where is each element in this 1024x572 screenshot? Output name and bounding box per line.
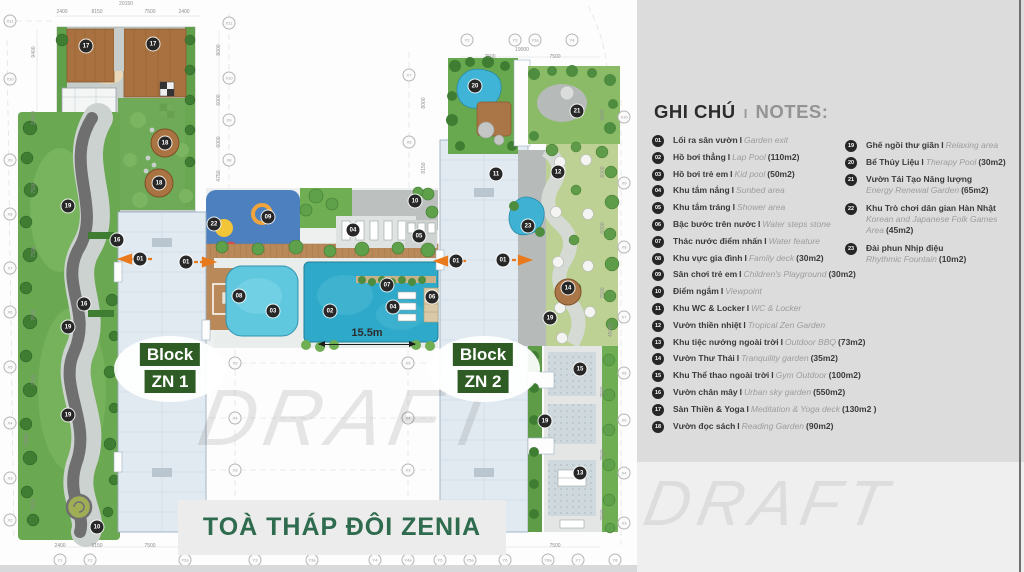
plan-marker: 07: [381, 279, 394, 292]
screenshot-root: 17 17 18 18 19 16 01 01 16 19 19 10: [0, 0, 1024, 572]
grid-bubble: X4: [618, 467, 631, 480]
grid-bubble: X3: [4, 472, 17, 485]
legend-item: 21 Vườn Tái Tạo Năng lượngEnergy Renewal…: [845, 174, 1017, 196]
legend-item-number: 15: [652, 370, 664, 382]
legend-item: 18 Vườn đọc sáchIReading Garden(90m2): [652, 421, 952, 433]
grid-bubble: X5: [4, 361, 17, 374]
legend-item-label-en: Kid pool: [735, 169, 766, 179]
legend-item-area: (30m2): [978, 157, 1005, 167]
plan-marker: 19: [62, 409, 75, 422]
legend-item-number: 04: [652, 185, 664, 197]
legend-item-label-vi: Khu tắm nắng: [673, 185, 730, 195]
dimension-text: 7500: [600, 449, 606, 460]
grid-bubble: X7: [4, 262, 17, 275]
dimension-text: 7500: [600, 509, 606, 520]
dimension-text: 10600: [31, 111, 37, 125]
plan-marker: 16: [111, 234, 124, 247]
legend-item-text: Hồ bơi thẳngILap Pool(110m2): [673, 152, 799, 163]
legend-item-area: (73m2): [838, 337, 865, 347]
legend-item-separator: I: [746, 404, 748, 414]
legend-item-label-en: Water steps stone: [762, 219, 830, 229]
plan-marker: 04: [387, 301, 400, 314]
plan-marker: 19: [62, 321, 75, 334]
grid-bubble: X10: [4, 73, 17, 86]
legend-item-label-en: Relaxing area: [946, 140, 998, 150]
grid-bubble: X6: [618, 367, 631, 380]
legend-item-text: Vườn thiền nhiệtITropical Zen Garden: [673, 320, 827, 331]
legend-item-label-vi: Vườn đọc sách: [673, 421, 735, 431]
legend-item-separator: I: [747, 303, 749, 313]
legend-item-separator: I: [771, 370, 773, 380]
legend-item-label-vi: Khu Thể thao ngoài trời: [673, 370, 769, 380]
grid-bubble: Y3: [509, 34, 522, 47]
dimension-text: 8000: [421, 97, 427, 108]
dimension-text: 2400: [178, 9, 189, 15]
legend-item-label-en: Therapy Pool: [926, 157, 977, 167]
legend-item-label-en: Garden exit: [744, 135, 788, 145]
legend-item-number: 12: [652, 320, 664, 332]
dimension-text: 6000: [600, 166, 606, 177]
legend-item-separator: I: [737, 421, 739, 431]
plan-marker: 06: [426, 291, 439, 304]
legend-item-label-vi: Vườn chân mây: [673, 387, 738, 397]
legend-item-text: Hồ bơi trẻ emIKid pool(50m2): [673, 169, 795, 180]
legend-item-separator: I: [721, 286, 723, 296]
dimension-text: 7500: [600, 287, 606, 298]
legend-item-text: Sân chơi trẻ emIChildren's Playground(30…: [673, 269, 856, 280]
legend-item-area: (45m2): [886, 225, 913, 235]
dimension-text: 7500: [31, 309, 37, 320]
legend-item-area: (35m2): [811, 353, 838, 363]
plan-marker: 15: [574, 363, 587, 376]
grid-bubble: X10: [618, 111, 631, 124]
dimension-text: 7500: [31, 374, 37, 385]
plan-marker: 02: [324, 305, 337, 318]
legend-item-number: 03: [652, 169, 664, 181]
legend-item-text: Khu Trò chơi dân gian Hàn NhậtKorean and…: [866, 203, 1017, 236]
plan-marker: 04: [347, 224, 360, 237]
legend-item: 19 Ghế ngồi thư giãnIRelaxing area: [845, 140, 1017, 152]
plan-marker: 19: [544, 312, 557, 325]
dimension-text: 8000: [216, 44, 222, 55]
grid-bubble: X8: [223, 154, 236, 167]
legend-item-separator: I: [740, 387, 742, 397]
legend-item-separator: I: [743, 320, 745, 330]
legend-item-label-vi: Thác nước điểm nhấn: [673, 236, 762, 246]
grid-bubble: X10: [223, 72, 236, 85]
plan-marker: 11: [490, 168, 503, 181]
legend-item-area: (550m2): [813, 387, 845, 397]
legend-item-area: (90m2): [806, 421, 833, 431]
legend-item-text: Khu Thể thao ngoài trờiIGym Outdoor(100m…: [673, 370, 861, 381]
legend-item-number: 18: [652, 421, 664, 433]
legend-item-label-en: Energy Renewal Garden: [866, 185, 959, 195]
legend-item-number: 16: [652, 387, 664, 399]
legend-item: 17 Sàn Thiền & YogaIMeditation & Yoga de…: [652, 404, 952, 416]
legend-item-label-vi: Hồ bơi thẳng: [673, 152, 726, 162]
legend-item-text: Điểm ngắmIViewpoint: [673, 286, 764, 297]
legend-item-text: Vườn Thư TháiITranquility garden(35m2): [673, 353, 838, 364]
legend-item-area: (65m2): [961, 185, 988, 195]
dimension-text: 7500: [31, 499, 37, 510]
plan-marker: 10: [409, 195, 422, 208]
block-zn2-label-line1: Block: [453, 343, 513, 366]
grid-bubble: X4: [229, 412, 242, 425]
grid-bubble: X3: [402, 464, 415, 477]
grid-bubble: X11: [223, 17, 236, 30]
legend-item-label-vi: Vườn thiền nhiệt: [673, 320, 741, 330]
plan-marker: 01: [134, 253, 147, 266]
project-title: TOÀ THÁP ĐÔI ZENIA: [203, 513, 481, 542]
legend-panel: GHI CHÚ I NOTES: 01 Lối ra sân vườnIGard…: [637, 0, 1024, 572]
legend-item-area: (110m2): [768, 152, 800, 162]
legend-item-label-en: Tranquility garden: [741, 353, 808, 363]
legend-item-text: Vườn chân mâyIUrban sky garden(550m2): [673, 387, 845, 398]
dimension-text: 2400: [54, 543, 65, 549]
legend-item-separator: I: [764, 236, 766, 246]
grid-bubble: X7: [403, 69, 416, 82]
legend-item-label-vi: Khu tắm tráng: [673, 202, 731, 212]
dimension-text: 7500: [549, 54, 560, 60]
dimension-text: 19000: [515, 47, 529, 53]
grid-bubble: X6: [4, 306, 17, 319]
legend-item-number: 11: [652, 303, 664, 315]
dimension-text: 8150: [91, 9, 102, 15]
legend-item-label-en: Rhythmic Fountain: [866, 254, 937, 264]
legend-item: 23 Đài phun Nhịp điệuRhythmic Fountain(1…: [845, 243, 1017, 265]
legend-item-text: Thác nước điểm nhấnIWater feature: [673, 236, 822, 247]
legend-item-separator: I: [740, 135, 742, 145]
legend-item-label-en: Family deck: [749, 253, 794, 263]
legend-item-area: (30m2): [796, 253, 823, 263]
legend-item-label-vi: Khu vực gia đình: [673, 253, 742, 263]
legend-item-separator: I: [732, 185, 734, 195]
dimension-text: 8000: [600, 109, 606, 120]
legend-item-text: Khu vực gia đìnhIFamily deck(30m2): [673, 253, 824, 264]
legend-item: 16 Vườn chân mâyIUrban sky garden(550m2): [652, 387, 952, 399]
plan-marker: 12: [552, 166, 565, 179]
legend-item-label-en: Water feature: [769, 236, 820, 246]
dimension-text: 4750: [216, 170, 222, 181]
legend-item-label-vi: Sân chơi trẻ em: [673, 269, 737, 279]
legend-item-text: Lối ra sân vườnIGarden exit: [673, 135, 790, 146]
dimension-text: 6000: [216, 136, 222, 147]
legend-item-label-en: Urban sky garden: [744, 387, 811, 397]
legend-item-text: Đài phun Nhịp điệuRhythmic Fountain(10m2…: [866, 243, 966, 265]
grid-bubble: X6: [403, 136, 416, 149]
legend-item-number: 20: [845, 157, 857, 169]
site-plan-drawing: [0, 0, 637, 572]
grid-bubble: Y2: [461, 34, 474, 47]
grid-bubble: X7: [618, 311, 631, 324]
legend-item: 12 Vườn thiền nhiệtITropical Zen Garden: [652, 320, 952, 332]
plan-marker: 17: [80, 40, 93, 53]
plan-marker: 19: [62, 200, 75, 213]
grid-bubble: Y4: [566, 34, 579, 47]
legend-item-label-en: Reading Garden: [742, 421, 804, 431]
legend-item: 14 Vườn Thư TháiITranquility garden(35m2…: [652, 353, 952, 365]
legend-item: 20 Bể Thủy LiệuITherapy Pool(30m2): [845, 157, 1017, 169]
legend-item-text: Bể Thủy LiệuITherapy Pool(30m2): [866, 157, 1006, 168]
dimension-text: 7500: [144, 9, 155, 15]
legend-column-2: 19 Ghế ngồi thư giãnIRelaxing area 20 Bể…: [845, 140, 1017, 272]
legend-item-label-en: Viewpoint: [725, 286, 762, 296]
legend-item-label-vi: Khu Trò chơi dân gian Hàn Nhật: [866, 203, 1017, 214]
legend-item-label-vi: Bậc bước trên nước: [673, 219, 756, 229]
legend-item-label-en: Outdoor BBQ: [785, 337, 836, 347]
grid-bubble: X4: [402, 412, 415, 425]
dimension-text: 6000: [216, 94, 222, 105]
grid-bubble: X3: [229, 464, 242, 477]
plan-marker: 13: [574, 467, 587, 480]
dimension-text: 7500: [549, 543, 560, 549]
plan-marker: 01: [180, 256, 193, 269]
legend-item-label-en: Sunbed area: [736, 185, 785, 195]
legend-item-number: 19: [845, 140, 857, 152]
legend-item-area: (50m2): [767, 169, 794, 179]
plan-marker: 19: [539, 415, 552, 428]
legend-item-label-en: Shower area: [737, 202, 785, 212]
legend-item-separator: I: [728, 152, 730, 162]
dimension-text: 72500: [24, 433, 30, 447]
legend-item-label-vi: Khu tiệc nướng ngoài trời: [673, 337, 779, 347]
dimension-text: 7500: [484, 54, 495, 60]
legend-item-number: 17: [652, 404, 664, 416]
legend-item-label-vi: Hồ bơi trẻ em: [673, 169, 728, 179]
legend-item-separator: I: [739, 269, 741, 279]
legend-item-label-en: Meditation & Yoga deck: [751, 404, 840, 414]
dimension-text: 7500: [31, 182, 37, 193]
grid-bubble: X5: [229, 357, 242, 370]
legend-item-number: 06: [652, 219, 664, 231]
panel-right-border: [1019, 0, 1021, 572]
grid-bubble: X9: [4, 154, 17, 167]
plan-marker: 03: [267, 305, 280, 318]
dimension-text: 9400: [31, 46, 37, 57]
legend-item-separator: I: [758, 219, 760, 229]
plan-marker: 17: [147, 38, 160, 51]
legend-item-separator: I: [941, 140, 943, 150]
legend-item-number: 14: [652, 353, 664, 365]
legend-header: GHI CHÚ I NOTES:: [654, 101, 828, 123]
legend-item-text: Ghế ngồi thư giãnIRelaxing area: [866, 140, 1000, 151]
site-plan: 17 17 18 18 19 16 01 01 16 19 19 10: [0, 0, 637, 572]
project-title-box: TOÀ THÁP ĐÔI ZENIA: [178, 500, 506, 555]
legend-item-separator: I: [921, 157, 923, 167]
grid-bubble: X8: [618, 241, 631, 254]
legend-item-label-en: Children's Playground: [744, 269, 827, 279]
legend-item: 22 Khu Trò chơi dân gian Hàn NhậtKorean …: [845, 203, 1017, 236]
plan-marker: 10: [91, 521, 104, 534]
dimension-text: 8150: [91, 543, 102, 549]
legend-item-label-vi: Sàn Thiền & Yoga: [673, 404, 744, 414]
legend-item-label-en: Gym Outdoor: [776, 370, 827, 380]
legend-item-label-vi: Vườn Thư Thái: [673, 353, 735, 363]
legend-title-en: NOTES:: [756, 101, 829, 122]
legend-item: 11 Khu WC & LockerIWC & Locker: [652, 303, 952, 315]
legend-item-label-vi: Điểm ngắm: [673, 286, 719, 296]
legend-title-vi: GHI CHÚ: [654, 101, 736, 122]
legend-item-label-vi: Vườn Tái Tạo Năng lượng: [866, 174, 989, 185]
legend-item-number: 21: [845, 174, 857, 186]
legend-item-label-vi: Lối ra sân vườn: [673, 135, 738, 145]
plan-marker: 20: [469, 80, 482, 93]
legend-item-text: Sàn Thiền & YogaIMeditation & Yoga deck(…: [673, 404, 877, 415]
legend-item-number: 02: [652, 152, 664, 164]
legend-item: 10 Điểm ngắmIViewpoint: [652, 286, 952, 298]
legend-item-text: Khu WC & LockerIWC & Locker: [673, 303, 803, 314]
legend-item: 13 Khu tiệc nướng ngoài trờiIOutdoor BBQ…: [652, 337, 952, 349]
legend-item-area: (10m2): [939, 254, 966, 264]
legend-item-text: Khu tắm trángIShower area: [673, 202, 787, 213]
pool-width-dimension-arrow: [319, 344, 415, 345]
legend-item-number: 05: [652, 202, 664, 214]
grid-bubble: X11: [4, 15, 17, 28]
legend-item-text: Vườn đọc sáchIReading Garden(90m2): [673, 421, 833, 432]
legend-item-text: Khu tắm nắngISunbed area: [673, 185, 787, 196]
grid-bubble: X5: [618, 414, 631, 427]
plan-marker: 01: [450, 255, 463, 268]
legend-item-label-vi: Khu WC & Locker: [673, 303, 745, 313]
plan-marker: 16: [78, 298, 91, 311]
legend-item-text: Bậc bước trên nướcIWater steps stone: [673, 219, 833, 230]
plan-marker: 21: [571, 105, 584, 118]
dimension-text: 45000: [608, 323, 614, 337]
legend-item-number: 08: [652, 253, 664, 265]
plan-marker: 08: [233, 290, 246, 303]
legend-item-area: (100m2): [829, 370, 861, 380]
plan-marker: 09: [262, 211, 275, 224]
plan-marker: 05: [413, 230, 426, 243]
dimension-text: 7500: [600, 386, 606, 397]
plan-marker: 14: [562, 282, 575, 295]
grid-bubble: X8: [4, 208, 17, 221]
legend-item-number: 10: [652, 286, 664, 298]
block-zn2-label-line2: ZN 2: [458, 370, 509, 393]
legend-item-separator: I: [744, 253, 746, 263]
legend-item-number: 22: [845, 203, 857, 215]
legend-item-area: (130m2 ): [842, 404, 877, 414]
block-zn1-label-line2: ZN 1: [145, 370, 196, 393]
legend-item-label-en: Lap Pool: [732, 152, 766, 162]
legend-item-number: 13: [652, 337, 664, 349]
dimension-text: 20150: [119, 1, 133, 7]
draft-watermark-panel: DRAFT: [638, 466, 899, 540]
plan-marker: 01: [497, 254, 510, 267]
dimension-text: 7500: [31, 246, 37, 257]
legend-item-number: 23: [845, 243, 857, 255]
dimension-text: 2400: [56, 9, 67, 15]
legend-item-text: Vườn Tái Tạo Năng lượngEnergy Renewal Ga…: [866, 174, 989, 196]
legend-item-label-en: Tropical Zen Garden: [748, 320, 825, 330]
legend-item-separator: I: [781, 337, 783, 347]
grid-bubble: X4: [4, 417, 17, 430]
block-zn1-label-line1: Block: [140, 343, 200, 366]
legend-item-number: 07: [652, 236, 664, 248]
legend-item-number: 01: [652, 135, 664, 147]
legend-item: 15 Khu Thể thao ngoài trờiIGym Outdoor(1…: [652, 370, 952, 382]
plan-marker: 23: [522, 220, 535, 233]
legend-item-text: Khu tiệc nướng ngoài trờiIOutdoor BBQ(73…: [673, 337, 865, 348]
dimension-text: 6000: [600, 222, 606, 233]
pool-width-dimension-label: 15.5m: [351, 327, 382, 339]
plan-marker: 18: [159, 137, 172, 150]
grid-bubble: X3: [618, 517, 631, 530]
plan-marker: 18: [153, 177, 166, 190]
legend-item-label-en: WC & Locker: [751, 303, 801, 313]
legend-item-separator: I: [737, 353, 739, 363]
grid-bubble: X5: [402, 357, 415, 370]
legend-title-separator: I: [744, 106, 748, 121]
bottom-margin-strip: [0, 565, 637, 572]
dimension-text: 9150: [421, 162, 427, 173]
dimension-text: 7500: [144, 543, 155, 549]
plan-marker: 22: [208, 218, 221, 231]
legend-item-label-vi: Đài phun Nhịp điệu: [866, 243, 966, 254]
legend-item-label-vi: Ghế ngồi thư giãn: [866, 140, 939, 150]
legend-item-separator: I: [733, 202, 735, 212]
grid-bubble: X2: [4, 514, 17, 527]
legend-item-label-vi: Bể Thủy Liệu: [866, 157, 919, 167]
grid-bubble: Y3a: [529, 34, 542, 47]
legend-item-separator: I: [730, 169, 732, 179]
grid-bubble: X9: [618, 177, 631, 190]
grid-bubble: X9: [223, 114, 236, 127]
legend-item-number: 09: [652, 269, 664, 281]
